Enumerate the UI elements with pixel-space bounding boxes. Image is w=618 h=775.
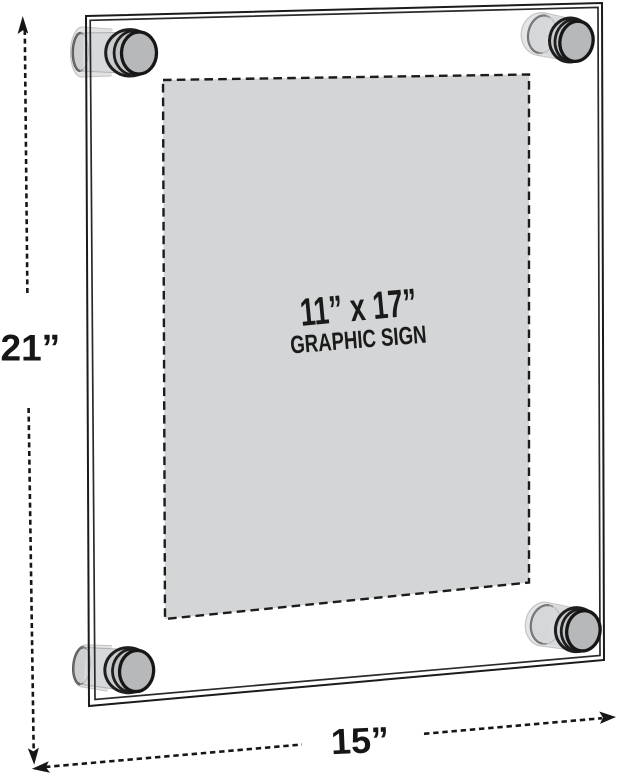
svg-text:21”: 21” [1,328,61,369]
svg-text:15”: 15” [330,719,390,762]
